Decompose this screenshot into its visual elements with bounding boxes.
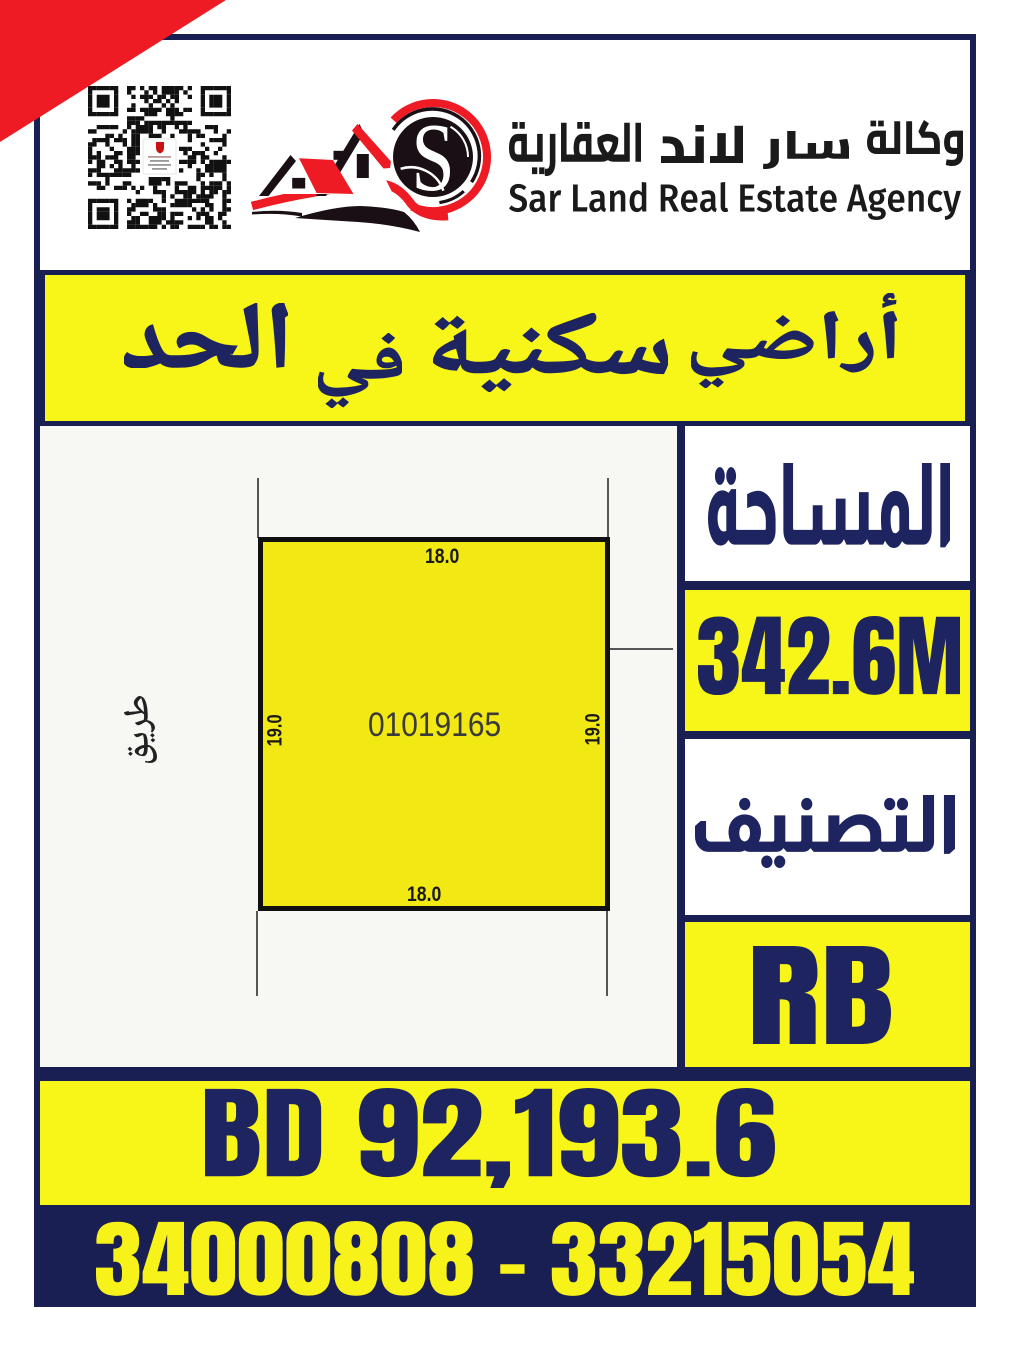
svg-text:S: S	[411, 104, 455, 212]
